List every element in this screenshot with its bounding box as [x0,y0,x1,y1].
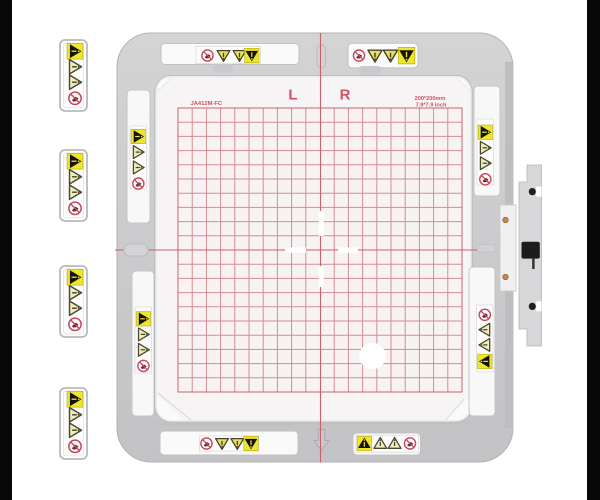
svg-text:R: R [340,87,351,104]
svg-text:200*200mm: 200*200mm [415,96,446,102]
svg-text:7.9*7.9 inch: 7.9*7.9 inch [416,103,447,109]
svg-text:L: L [288,87,297,104]
svg-text:JA412M-FC: JA412M-FC [191,101,223,107]
